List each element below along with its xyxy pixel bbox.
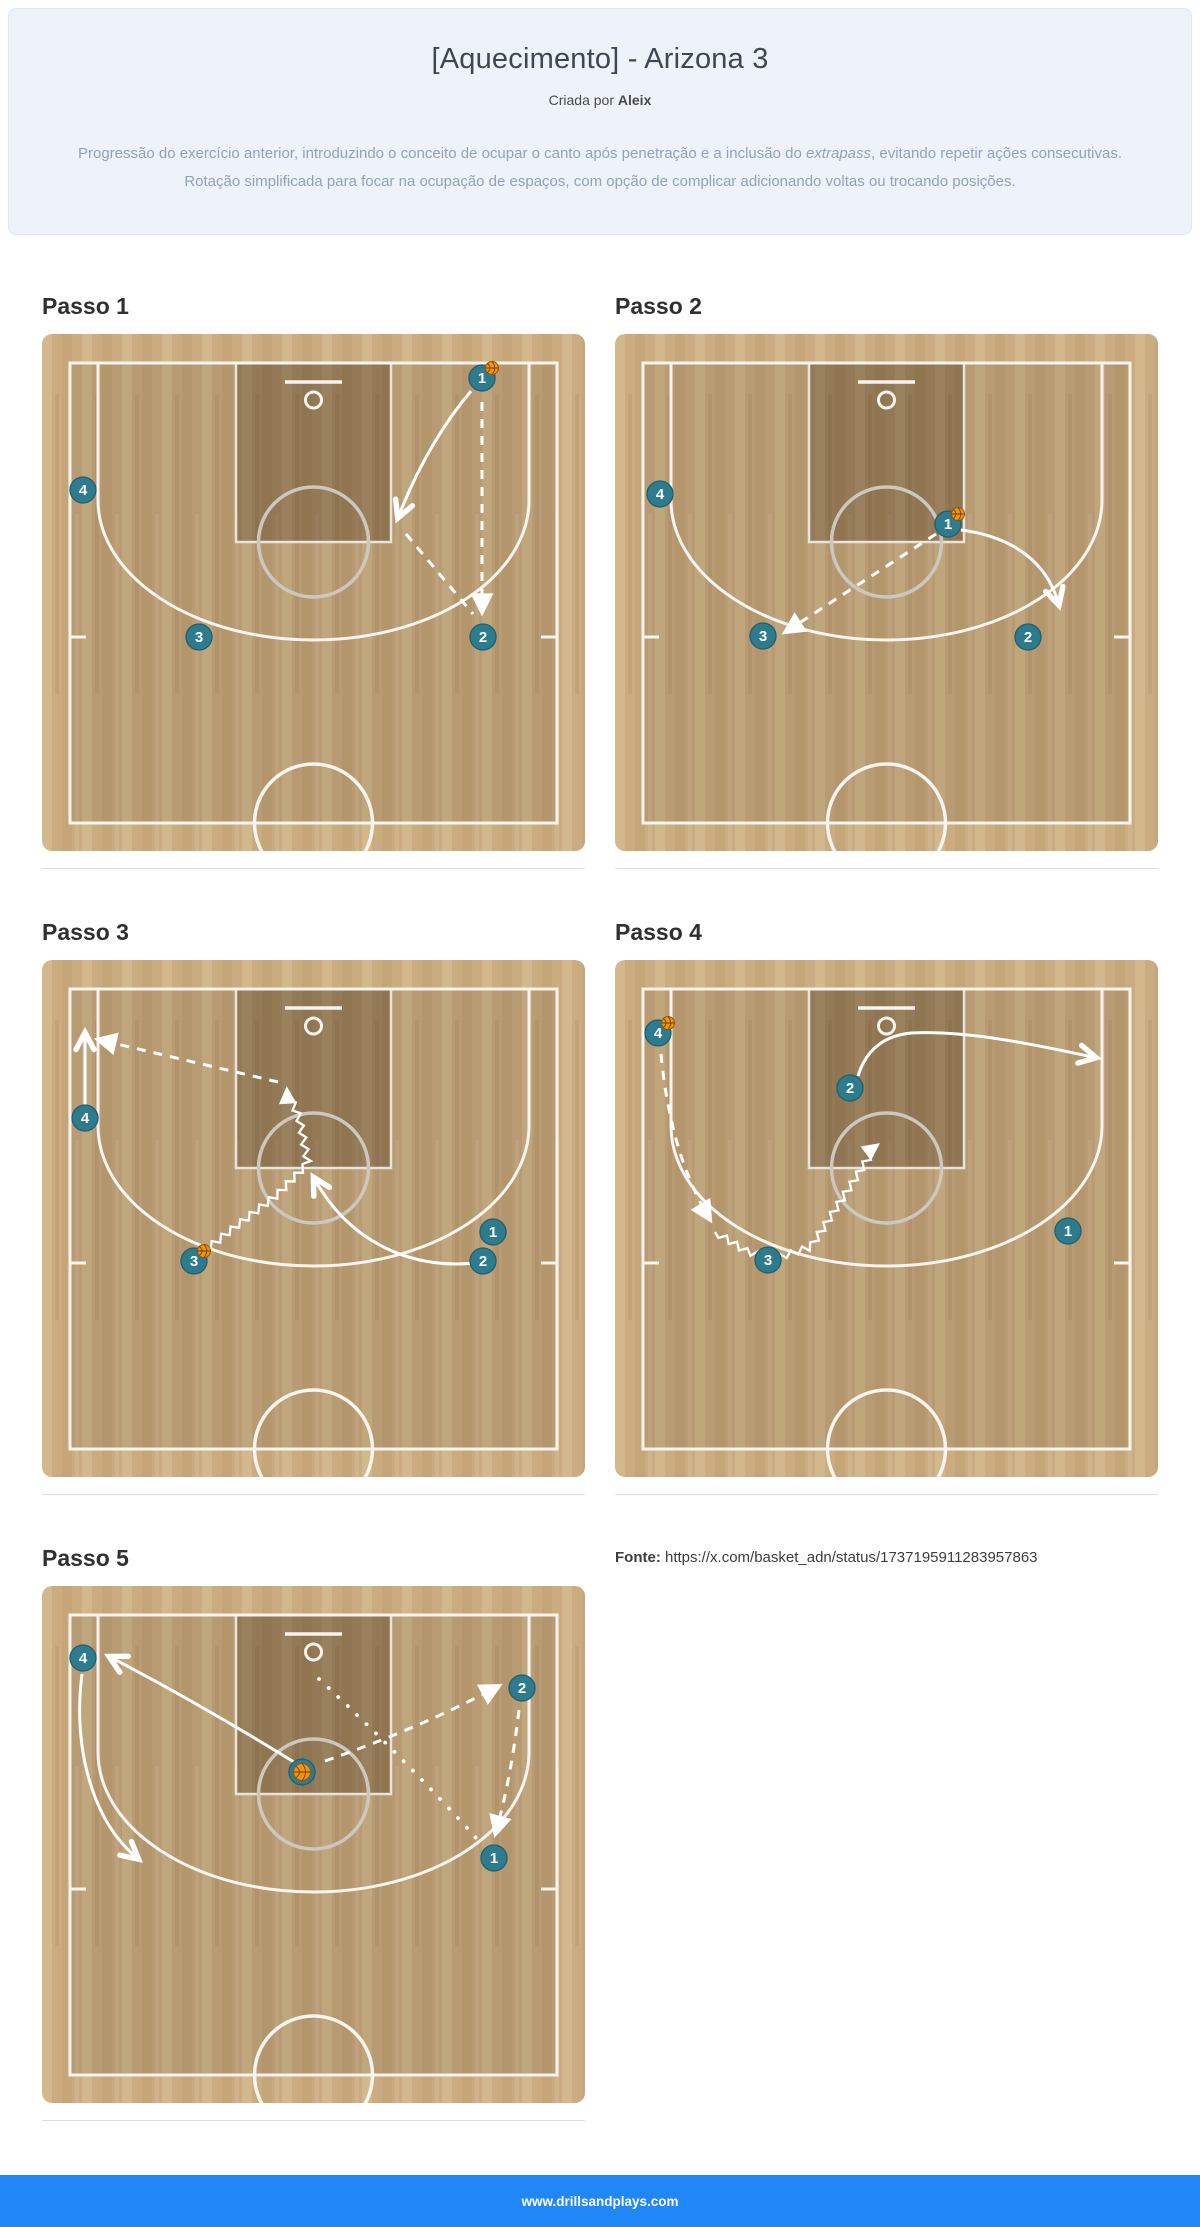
- player-token: 1: [480, 1219, 506, 1245]
- court-diagram: 4132: [615, 334, 1158, 851]
- step-title: Passo 3: [42, 919, 585, 946]
- page-title: [Aquecimento] - Arizona 3: [39, 43, 1161, 76]
- byline: Criada por Aleix: [39, 92, 1161, 108]
- description-italic-term: extrapass: [806, 145, 871, 162]
- player-number: 2: [1024, 629, 1032, 646]
- player-token: 2: [837, 1075, 863, 1101]
- court-diagram: 4321: [42, 1586, 585, 2103]
- player-token: 3: [186, 624, 212, 650]
- basketball-icon: [198, 1244, 211, 1257]
- player-number: 3: [190, 1253, 198, 1270]
- source-line: Fonte: https://x.com/basket_adn/status/1…: [615, 1549, 1158, 2121]
- player-number: 1: [490, 1850, 498, 1867]
- step-section: Passo 44231: [615, 869, 1158, 1495]
- key-area: [236, 363, 391, 542]
- step-title: Passo 5: [42, 1545, 585, 1572]
- player-number: 2: [479, 1253, 487, 1270]
- basketball-icon: [662, 1016, 675, 1029]
- court-diagram: 4321: [42, 960, 585, 1477]
- author-name: Aleix: [618, 92, 651, 108]
- court-wrap: 4321: [42, 1586, 585, 2103]
- player-number: 2: [846, 1080, 854, 1097]
- player-token: 1: [481, 1845, 507, 1871]
- step-title: Passo 2: [615, 293, 1158, 320]
- basketball-icon: [486, 361, 499, 374]
- court-wrap: 4231: [615, 960, 1158, 1477]
- steps-grid: Passo 14321Passo 24132Passo 34321Passo 4…: [0, 243, 1200, 2121]
- step-divider: [615, 1494, 1158, 1495]
- key-area: [809, 989, 964, 1168]
- player-number: 1: [489, 1224, 497, 1241]
- player-number: 4: [81, 1110, 90, 1127]
- player-number: 4: [79, 482, 88, 499]
- court-diagram: 4231: [615, 960, 1158, 1477]
- footer-site-text: www.drillsandplays.com: [521, 2194, 678, 2209]
- player-token: 4: [72, 1105, 98, 1131]
- player-number: 4: [654, 1025, 663, 1042]
- step-section: Passo 34321: [42, 869, 585, 1495]
- player-token: 3: [755, 1247, 781, 1273]
- player-number: 1: [944, 516, 952, 533]
- player-token: 4: [70, 477, 96, 503]
- player-number: 2: [518, 1680, 526, 1697]
- player-number: 2: [479, 629, 487, 646]
- player-number: 4: [79, 1650, 88, 1667]
- player-token: 2: [509, 1675, 535, 1701]
- step-title: Passo 4: [615, 919, 1158, 946]
- court-wrap: 4321: [42, 334, 585, 851]
- player-token: 3: [750, 623, 776, 649]
- source-label: Fonte:: [615, 1549, 661, 1566]
- step-divider: [42, 2120, 585, 2121]
- player-number: 3: [759, 628, 767, 645]
- player-number: 1: [1064, 1223, 1072, 1240]
- player-token: 2: [470, 1248, 496, 1274]
- player-number: 3: [764, 1252, 772, 1269]
- player-token: 2: [1015, 624, 1041, 650]
- player-number: 3: [195, 629, 203, 646]
- court-diagram: 4321: [42, 334, 585, 851]
- page: [Aquecimento] - Arizona 3 Criada por Ale…: [0, 8, 1200, 2227]
- court-wrap: 4321: [42, 960, 585, 1477]
- court-wrap: 4132: [615, 334, 1158, 851]
- header-card: [Aquecimento] - Arizona 3 Criada por Ale…: [8, 8, 1192, 235]
- step-title: Passo 1: [42, 293, 585, 320]
- byline-prefix: Criada por: [549, 92, 614, 108]
- player-token: 3: [289, 1759, 315, 1785]
- step-section: Passo 54321: [42, 1495, 585, 2121]
- source-url: https://x.com/basket_adn/status/17371959…: [665, 1549, 1038, 1566]
- player-token: 4: [70, 1645, 96, 1671]
- footer-bar: www.drillsandplays.com: [0, 2175, 1200, 2227]
- player-token: 2: [470, 624, 496, 650]
- drill-description: Progressão do exercício anterior, introd…: [55, 140, 1145, 196]
- basketball-icon: [952, 507, 965, 520]
- player-number: 1: [478, 370, 486, 387]
- player-number: 4: [656, 486, 665, 503]
- step-section: Passo 24132: [615, 243, 1158, 869]
- step-section: Passo 14321: [42, 243, 585, 869]
- player-token: 1: [1055, 1218, 1081, 1244]
- player-token: 4: [647, 481, 673, 507]
- basketball-icon: [294, 1763, 311, 1780]
